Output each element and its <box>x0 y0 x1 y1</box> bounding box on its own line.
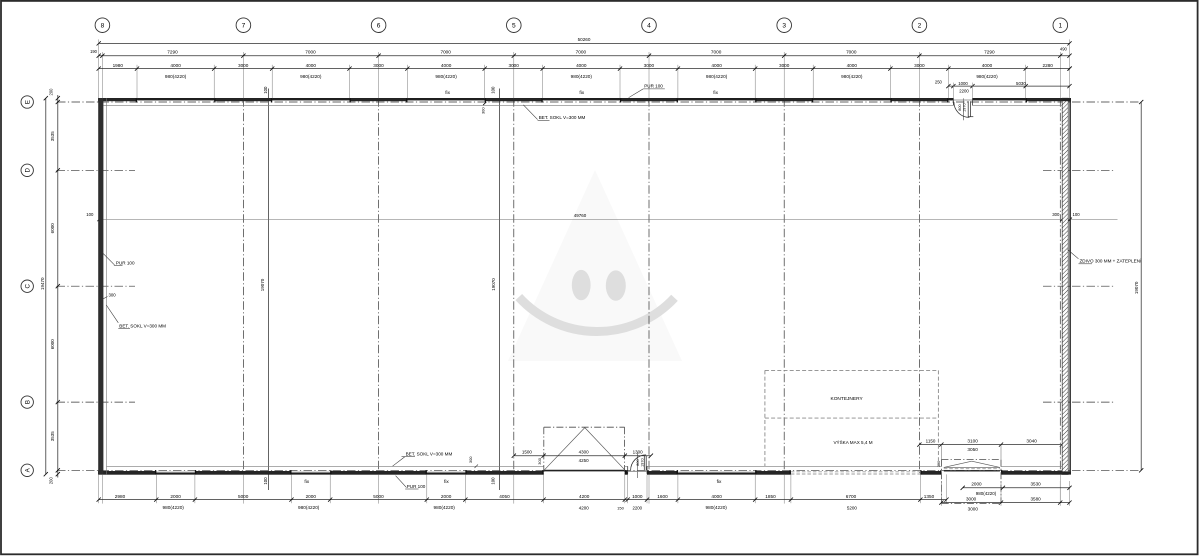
svg-text:ZDIVO 300 MM + ZATEPLENÍ: ZDIVO 300 MM + ZATEPLENÍ <box>1080 257 1143 263</box>
svg-text:250: 250 <box>935 80 943 85</box>
svg-text:19070: 19070 <box>491 278 496 291</box>
svg-text:7000: 7000 <box>711 49 722 54</box>
svg-text:50260: 50260 <box>578 37 591 42</box>
svg-text:5000: 5000 <box>238 494 249 499</box>
svg-text:2200: 2200 <box>633 505 643 510</box>
svg-text:3000: 3000 <box>238 63 249 68</box>
svg-text:3535: 3535 <box>50 431 55 442</box>
svg-text:2000: 2000 <box>441 494 452 499</box>
svg-text:1300: 1300 <box>633 449 644 454</box>
svg-text:3000: 3000 <box>914 63 925 68</box>
svg-text:150: 150 <box>617 505 624 510</box>
svg-text:3100: 3100 <box>967 438 978 443</box>
svg-text:980(4220): 980(4220) <box>841 74 863 79</box>
svg-text:300: 300 <box>537 457 542 464</box>
svg-text:1000: 1000 <box>632 494 643 499</box>
svg-text:800: 800 <box>958 104 962 110</box>
svg-text:4000: 4000 <box>306 63 317 68</box>
svg-text:300: 300 <box>109 292 117 297</box>
svg-text:4000: 4000 <box>847 63 858 68</box>
svg-text:D: D <box>24 168 31 173</box>
svg-text:fix: fix <box>304 479 309 485</box>
svg-text:1970: 1970 <box>963 103 967 111</box>
svg-text:2200: 2200 <box>959 89 969 94</box>
svg-text:1000: 1000 <box>958 81 968 86</box>
svg-text:PUR 100: PUR 100 <box>644 84 663 89</box>
svg-text:4000: 4000 <box>711 63 722 68</box>
svg-text:3530: 3530 <box>1030 482 1041 487</box>
svg-text:4000: 4000 <box>576 63 587 68</box>
svg-text:200: 200 <box>49 88 54 96</box>
svg-text:490: 490 <box>1060 47 1068 52</box>
svg-text:2000: 2000 <box>971 482 982 487</box>
svg-text:BET. SOKL V=300 MM: BET. SOKL V=300 MM <box>539 115 586 120</box>
svg-text:1350: 1350 <box>924 494 935 499</box>
svg-text:7290: 7290 <box>984 49 995 54</box>
svg-text:100: 100 <box>491 477 496 485</box>
svg-text:1500: 1500 <box>522 449 533 454</box>
svg-text:980(4220): 980(4220) <box>434 505 456 510</box>
svg-text:7000: 7000 <box>576 49 587 54</box>
svg-text:2000: 2000 <box>306 494 317 499</box>
svg-text:PUR 100: PUR 100 <box>407 484 426 489</box>
svg-text:980(4220): 980(4220) <box>300 74 322 79</box>
svg-text:C: C <box>24 283 31 288</box>
svg-text:3000: 3000 <box>968 506 979 511</box>
svg-text:300: 300 <box>468 456 473 463</box>
svg-text:fix: fix <box>445 90 450 96</box>
svg-text:3050: 3050 <box>967 447 978 452</box>
svg-text:2: 2 <box>918 23 922 30</box>
svg-text:fix: fix <box>579 90 584 96</box>
svg-text:7000: 7000 <box>440 49 451 54</box>
svg-text:1980: 1980 <box>113 63 124 68</box>
svg-text:800: 800 <box>636 459 640 465</box>
svg-text:3580: 3580 <box>1030 497 1041 502</box>
svg-text:980(4220): 980(4220) <box>976 74 998 79</box>
svg-text:100: 100 <box>86 212 94 217</box>
svg-text:6000: 6000 <box>50 223 55 234</box>
svg-text:6000: 6000 <box>50 339 55 350</box>
svg-text:3000: 3000 <box>644 63 655 68</box>
svg-text:BET. SOKL V=300 MM: BET. SOKL V=300 MM <box>406 451 453 456</box>
svg-text:19070: 19070 <box>260 278 265 291</box>
svg-text:300: 300 <box>481 107 486 114</box>
svg-text:8: 8 <box>101 23 105 30</box>
svg-text:4300: 4300 <box>579 449 590 454</box>
svg-text:4000: 4000 <box>441 63 452 68</box>
svg-text:49760: 49760 <box>574 213 587 218</box>
svg-text:980(4220): 980(4220) <box>571 74 593 79</box>
svg-text:980(4220): 980(4220) <box>706 505 728 510</box>
svg-text:BET. SOKL V=300 MM: BET. SOKL V=300 MM <box>119 323 166 328</box>
svg-text:1600: 1600 <box>657 494 668 499</box>
svg-text:1: 1 <box>1058 23 1062 30</box>
svg-text:19470: 19470 <box>40 277 45 290</box>
svg-text:980(4220): 980(4220) <box>163 505 185 510</box>
svg-text:980(4220): 980(4220) <box>165 74 187 79</box>
svg-text:3000: 3000 <box>779 63 790 68</box>
svg-text:5000: 5000 <box>373 494 384 499</box>
svg-text:1850: 1850 <box>765 494 776 499</box>
svg-text:7: 7 <box>242 23 246 30</box>
svg-text:PUR 100: PUR 100 <box>116 260 135 265</box>
svg-text:100: 100 <box>263 86 268 94</box>
svg-text:4200: 4200 <box>579 494 590 499</box>
svg-text:19070: 19070 <box>1134 281 1139 294</box>
svg-text:4250: 4250 <box>579 458 590 463</box>
svg-text:4000: 4000 <box>170 63 181 68</box>
svg-text:3000: 3000 <box>373 63 384 68</box>
svg-text:KONTEJNERY: KONTEJNERY <box>831 396 864 402</box>
svg-text:6: 6 <box>377 23 381 30</box>
svg-text:2980: 2980 <box>115 494 126 499</box>
svg-text:VÝŠKA MAX 5,4 M: VÝŠKA MAX 5,4 M <box>833 439 872 445</box>
svg-text:5: 5 <box>512 23 516 30</box>
svg-text:7000: 7000 <box>305 49 316 54</box>
svg-text:B: B <box>24 400 31 404</box>
svg-text:100: 100 <box>263 477 268 485</box>
svg-text:7290: 7290 <box>167 49 178 54</box>
svg-text:3000: 3000 <box>966 497 977 502</box>
svg-text:200: 200 <box>49 477 54 485</box>
svg-text:2280: 2280 <box>1042 63 1053 68</box>
svg-text:980(4220): 980(4220) <box>298 505 320 510</box>
svg-text:fix: fix <box>717 479 722 485</box>
svg-text:190: 190 <box>90 49 98 54</box>
svg-text:980(4220): 980(4220) <box>435 74 457 79</box>
svg-text:4000: 4000 <box>982 63 993 68</box>
svg-text:100: 100 <box>491 86 496 94</box>
svg-text:5200: 5200 <box>847 505 858 510</box>
svg-text:4000: 4000 <box>711 494 722 499</box>
svg-text:980(4220): 980(4220) <box>976 491 997 496</box>
svg-text:5030: 5030 <box>1016 81 1026 86</box>
svg-text:100: 100 <box>1073 212 1081 217</box>
svg-text:3: 3 <box>782 23 786 30</box>
svg-text:fix: fix <box>713 90 718 96</box>
svg-text:3040: 3040 <box>1026 438 1037 443</box>
svg-text:fix: fix <box>444 479 449 485</box>
svg-text:3535: 3535 <box>50 131 55 142</box>
svg-text:4200: 4200 <box>579 505 590 510</box>
svg-text:4050: 4050 <box>499 494 510 499</box>
svg-text:7000: 7000 <box>846 49 857 54</box>
svg-text:980(4220): 980(4220) <box>706 74 728 79</box>
svg-text:300: 300 <box>1052 212 1060 217</box>
svg-text:1150: 1150 <box>926 438 936 443</box>
svg-text:E: E <box>24 100 31 104</box>
svg-text:1970: 1970 <box>640 458 644 466</box>
svg-text:6700: 6700 <box>846 494 857 499</box>
svg-text:2000: 2000 <box>170 494 181 499</box>
svg-text:4: 4 <box>647 23 651 30</box>
svg-text:3000: 3000 <box>508 63 519 68</box>
